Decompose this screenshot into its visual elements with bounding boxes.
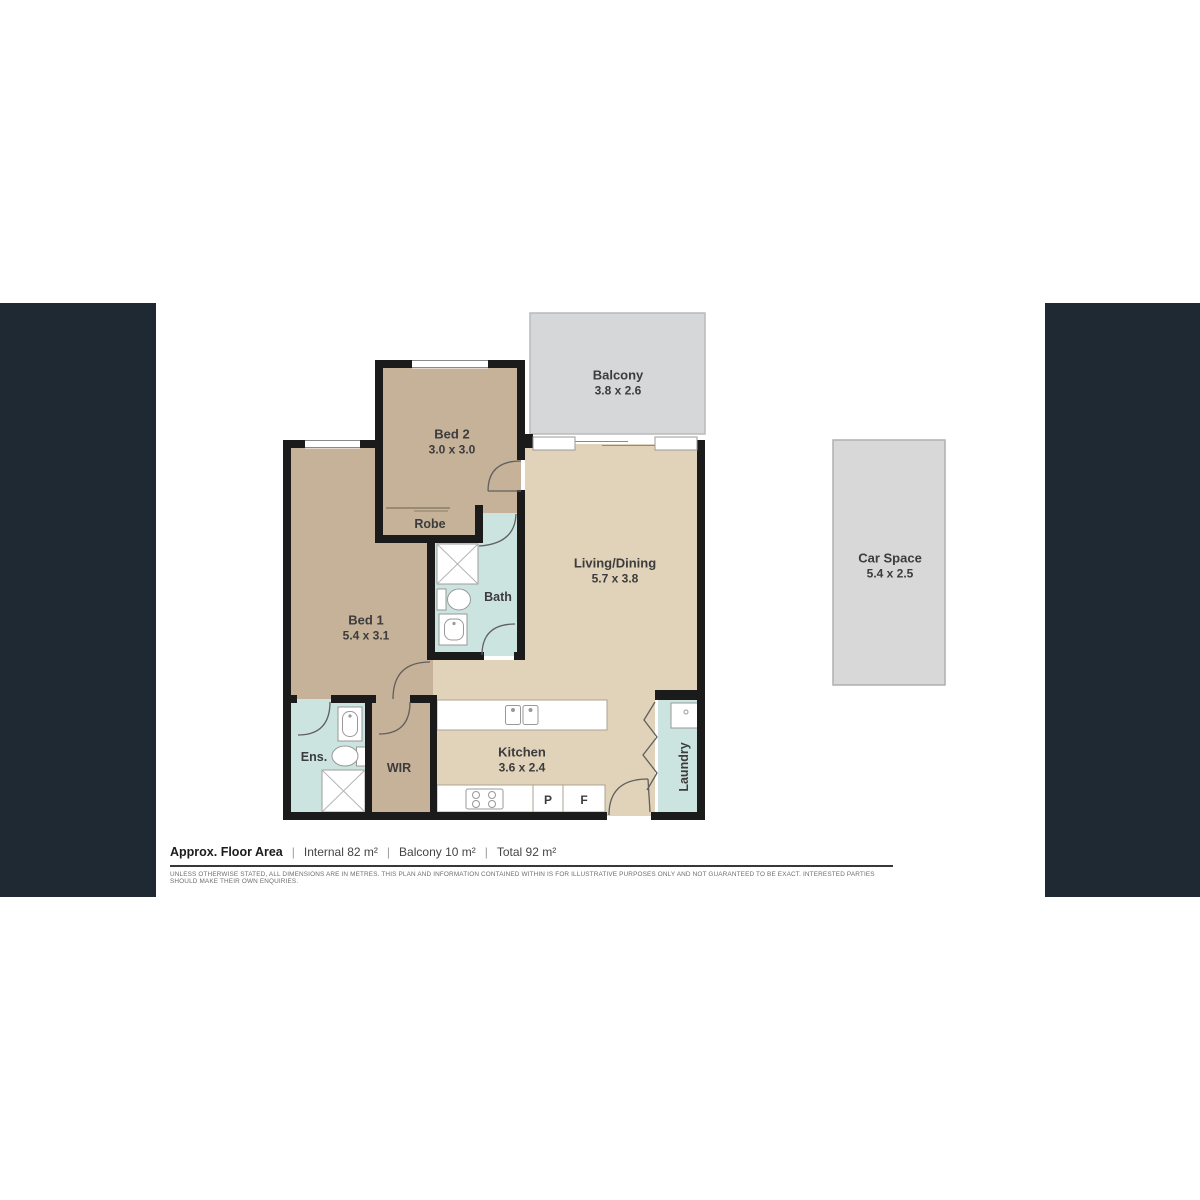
internal-area-value: Internal 82 m² xyxy=(304,845,378,859)
bath-toilet xyxy=(437,589,471,610)
wir-floor xyxy=(368,699,434,816)
balcony-area xyxy=(530,313,705,434)
floor-area-summary: Approx. Floor Area | Internal 82 m² | Ba… xyxy=(170,845,893,859)
bath-vanity xyxy=(439,614,467,645)
ensuite-toilet xyxy=(332,746,366,766)
bed2-window xyxy=(412,360,488,369)
separator: | xyxy=(485,845,488,859)
kitchen-island-counter xyxy=(437,700,607,730)
car-space-area xyxy=(833,440,945,685)
floor-plan-drawing xyxy=(0,0,1200,1200)
floor-area-footer: Approx. Floor Area | Internal 82 m² | Ba… xyxy=(170,845,893,885)
balcony-area-value: Balcony 10 m² xyxy=(399,845,476,859)
floorplan-page: Balcony 3.8 x 2.6 Car Space 5.4 x 2.5 Be… xyxy=(0,0,1200,1200)
disclaimer-text: UNLESS OTHERWISE STATED, ALL DIMENSIONS … xyxy=(170,871,893,885)
ensuite-vanity xyxy=(338,707,362,741)
bath-shower xyxy=(437,544,478,584)
bed2-floor xyxy=(379,364,521,539)
laundry-sink xyxy=(671,703,698,728)
floor-area-label: Approx. Floor Area xyxy=(170,845,283,859)
footer-divider xyxy=(170,865,893,867)
separator: | xyxy=(292,845,295,859)
total-area-value: Total 92 m² xyxy=(497,845,556,859)
bed1-window xyxy=(305,440,360,449)
separator: | xyxy=(387,845,390,859)
cooktop xyxy=(466,789,503,809)
ensuite-shower xyxy=(322,770,365,812)
kitchen-lower-counter xyxy=(437,785,605,812)
